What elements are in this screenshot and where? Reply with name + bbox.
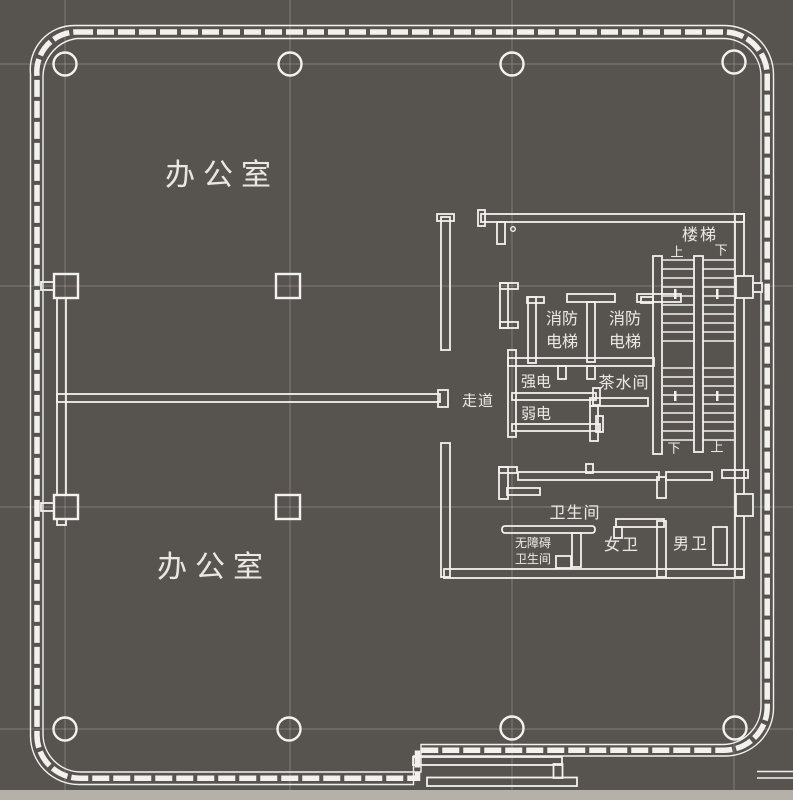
label-stair-bottom-up: 上 — [710, 441, 723, 454]
corridor-walls — [57, 214, 454, 577]
label-office-top: 办公室 — [165, 161, 279, 191]
entrance-steps — [413, 757, 577, 786]
label-fire-elevator-2-line1: 消防 — [609, 312, 641, 328]
label-restroom: 卫生间 — [549, 506, 600, 522]
exterior-wall — [30, 25, 793, 784]
label-womens-restroom: 女卫 — [604, 538, 640, 554]
round-columns — [54, 51, 747, 741]
label-office-bottom: 办公室 — [157, 553, 271, 583]
label-stair-top-down: 下 — [714, 244, 727, 257]
label-strong-electric: 强电 — [521, 375, 551, 390]
label-accessible-restroom-line1: 无障碍 — [515, 537, 551, 549]
label-fire-elevator-1-line1: 消防 — [546, 312, 578, 328]
staircase — [663, 256, 734, 452]
label-stair: 楼梯 — [682, 228, 718, 244]
label-fire-elevator-2-line2: 电梯 — [609, 335, 641, 351]
label-fire-elevator-1-line2: 电梯 — [546, 335, 578, 351]
label-stair-bottom-down: 下 — [667, 442, 680, 455]
label-corridor: 走道 — [462, 394, 494, 409]
floor-plan: 办公室 办公室 楼梯 上 下 下 上 消防 电梯 消防 电梯 强电 弱电 茶水间… — [0, 0, 793, 800]
label-stair-top-up: 上 — [670, 246, 683, 259]
square-columns — [41, 274, 300, 525]
floor-plan-drawing — [0, 0, 793, 800]
label-accessible-restroom-line2: 卫生间 — [515, 553, 551, 565]
bottom-edge-strip — [0, 790, 793, 800]
label-weak-electric: 弱电 — [521, 407, 551, 422]
label-mens-restroom: 男卫 — [673, 537, 709, 553]
label-tea-room: 茶水间 — [598, 376, 649, 392]
